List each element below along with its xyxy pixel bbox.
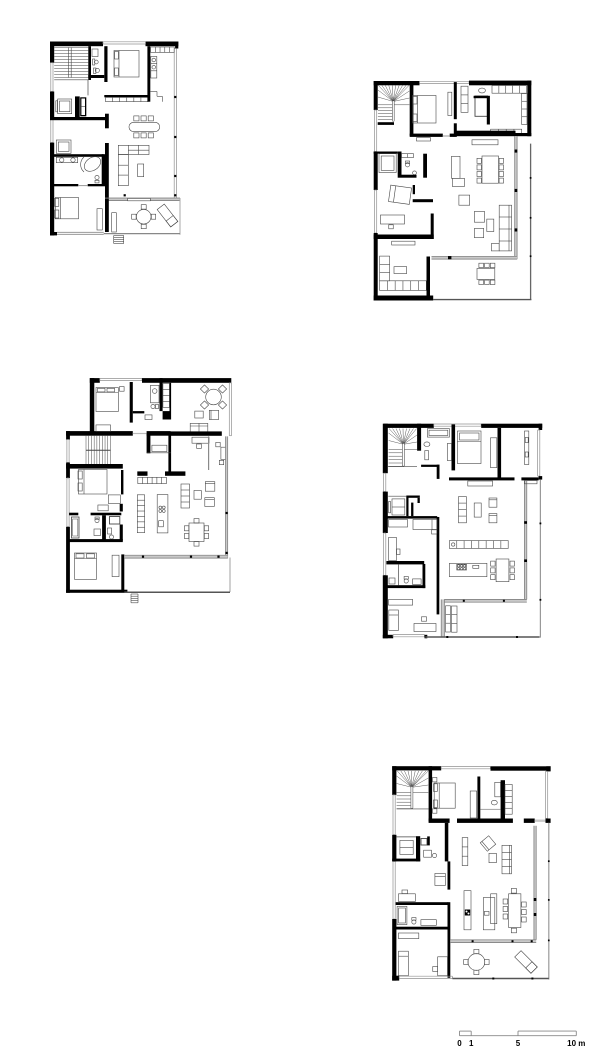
svg-text:5: 5 [516,1039,521,1048]
svg-text:1: 1 [469,1039,474,1048]
svg-text:0: 0 [457,1039,462,1048]
svg-text:10 m: 10 m [567,1039,585,1048]
